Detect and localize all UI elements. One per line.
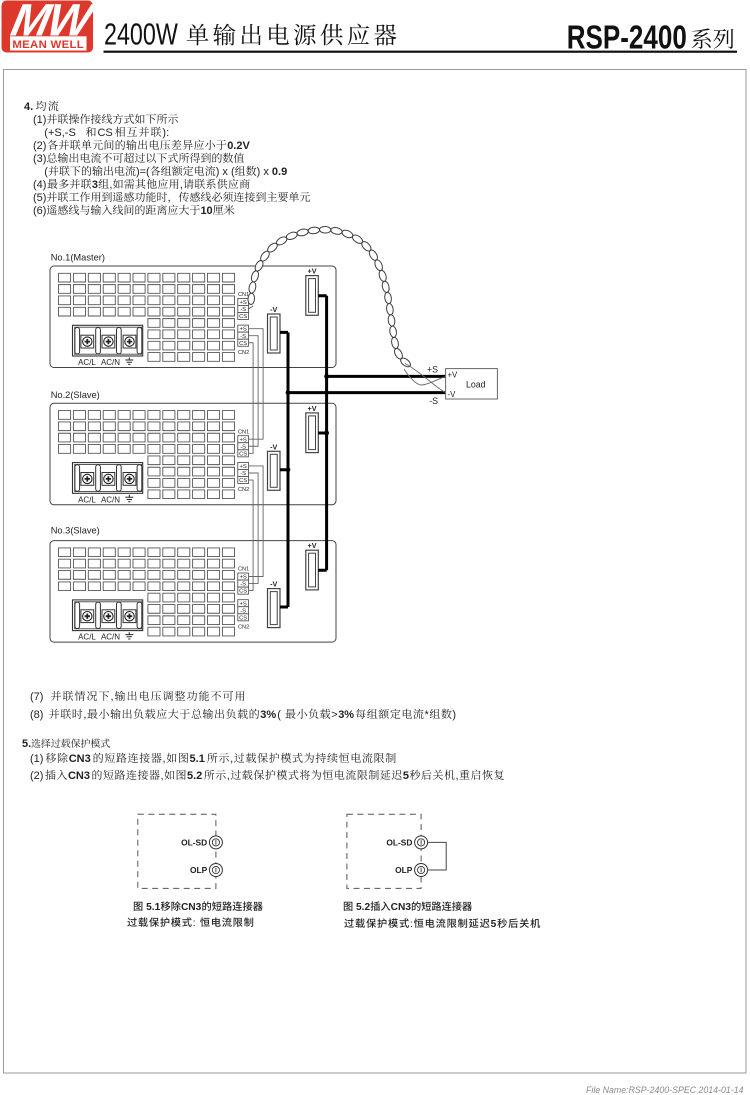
svg-text:(7): (7) — [30, 691, 43, 703]
svg-text:): ) — [452, 709, 456, 721]
svg-text:OL-SD: OL-SD — [181, 838, 207, 848]
svg-text:OLP: OLP — [395, 865, 413, 875]
svg-text:(4): (4) — [33, 179, 46, 191]
svg-text:2400W: 2400W — [104, 17, 178, 52]
svg-text:3: 3 — [92, 179, 98, 191]
svg-text:(1): (1) — [30, 753, 43, 765]
svg-text:,: , — [227, 770, 230, 782]
svg-text:CS: CS — [97, 127, 112, 139]
svg-text:,: , — [83, 709, 86, 721]
svg-text:-S: -S — [429, 396, 438, 406]
svg-text::: : — [410, 919, 413, 930]
svg-text:(2): (2) — [33, 140, 46, 152]
svg-text:3%: 3% — [338, 709, 354, 721]
svg-text:>: > — [331, 709, 337, 721]
svg-text:(3): (3) — [33, 153, 46, 165]
svg-text:CN3: CN3 — [68, 770, 90, 782]
svg-text:+S: +S — [427, 365, 438, 375]
svg-text:-V: -V — [448, 390, 457, 399]
svg-text:+V: +V — [448, 371, 459, 380]
svg-text:)=(: )=( — [136, 166, 150, 178]
svg-text:RSP-2400: RSP-2400 — [567, 19, 687, 56]
svg-text:OLP: OLP — [190, 865, 208, 875]
svg-text:(+S,-S: (+S,-S — [44, 127, 75, 139]
svg-text:*: * — [425, 709, 430, 721]
svg-text:0.2V: 0.2V — [227, 140, 250, 152]
svg-text:MEAN WELL: MEAN WELL — [12, 39, 84, 51]
svg-text:,: , — [160, 770, 163, 782]
svg-text:0.9: 0.9 — [272, 166, 287, 178]
svg-text:) x (: ) x ( — [216, 166, 235, 178]
svg-text:,: , — [180, 179, 183, 191]
svg-text:CN3: CN3 — [69, 753, 91, 765]
svg-text:(1): (1) — [33, 114, 46, 126]
svg-text:Load: Load — [466, 380, 486, 390]
svg-text:5.: 5. — [22, 738, 31, 750]
svg-text:No.3(Slave): No.3(Slave) — [51, 526, 100, 536]
svg-text:3%: 3% — [260, 709, 276, 721]
svg-text:4.: 4. — [24, 101, 33, 113]
svg-text:,: , — [230, 753, 233, 765]
svg-text:5: 5 — [403, 770, 409, 782]
svg-text:,: , — [163, 753, 166, 765]
svg-text:,: , — [109, 179, 112, 191]
svg-text:(2): (2) — [30, 770, 43, 782]
svg-text:(6): (6) — [33, 205, 46, 217]
svg-text:5: 5 — [491, 919, 497, 930]
svg-text:No.2(Slave): No.2(Slave) — [51, 390, 100, 400]
svg-text:,: , — [455, 770, 458, 782]
svg-text:CN3: CN3 — [391, 902, 412, 913]
svg-text:CN3: CN3 — [181, 902, 202, 913]
svg-text:5.2: 5.2 — [356, 902, 370, 913]
svg-text:(5): (5) — [33, 192, 46, 204]
svg-text:5.1: 5.1 — [190, 753, 205, 765]
svg-text:):: ): — [162, 127, 169, 139]
svg-text:) x: ) x — [257, 166, 270, 178]
svg-text::: : — [193, 918, 196, 929]
svg-text:5.2: 5.2 — [187, 770, 202, 782]
svg-text:File Name:RSP-2400-SPEC 2014-: File Name:RSP-2400-SPEC 2014-01-14 — [586, 1085, 744, 1095]
svg-text:,: , — [111, 691, 114, 703]
svg-text:No.1(Master): No.1(Master) — [51, 253, 105, 263]
svg-text:(8): (8) — [30, 709, 43, 721]
svg-text:OL-SD: OL-SD — [386, 838, 412, 848]
svg-text:10: 10 — [200, 205, 212, 217]
svg-text:(: ( — [44, 166, 48, 178]
svg-text:(: ( — [277, 709, 281, 721]
svg-text:5.1: 5.1 — [146, 902, 160, 913]
